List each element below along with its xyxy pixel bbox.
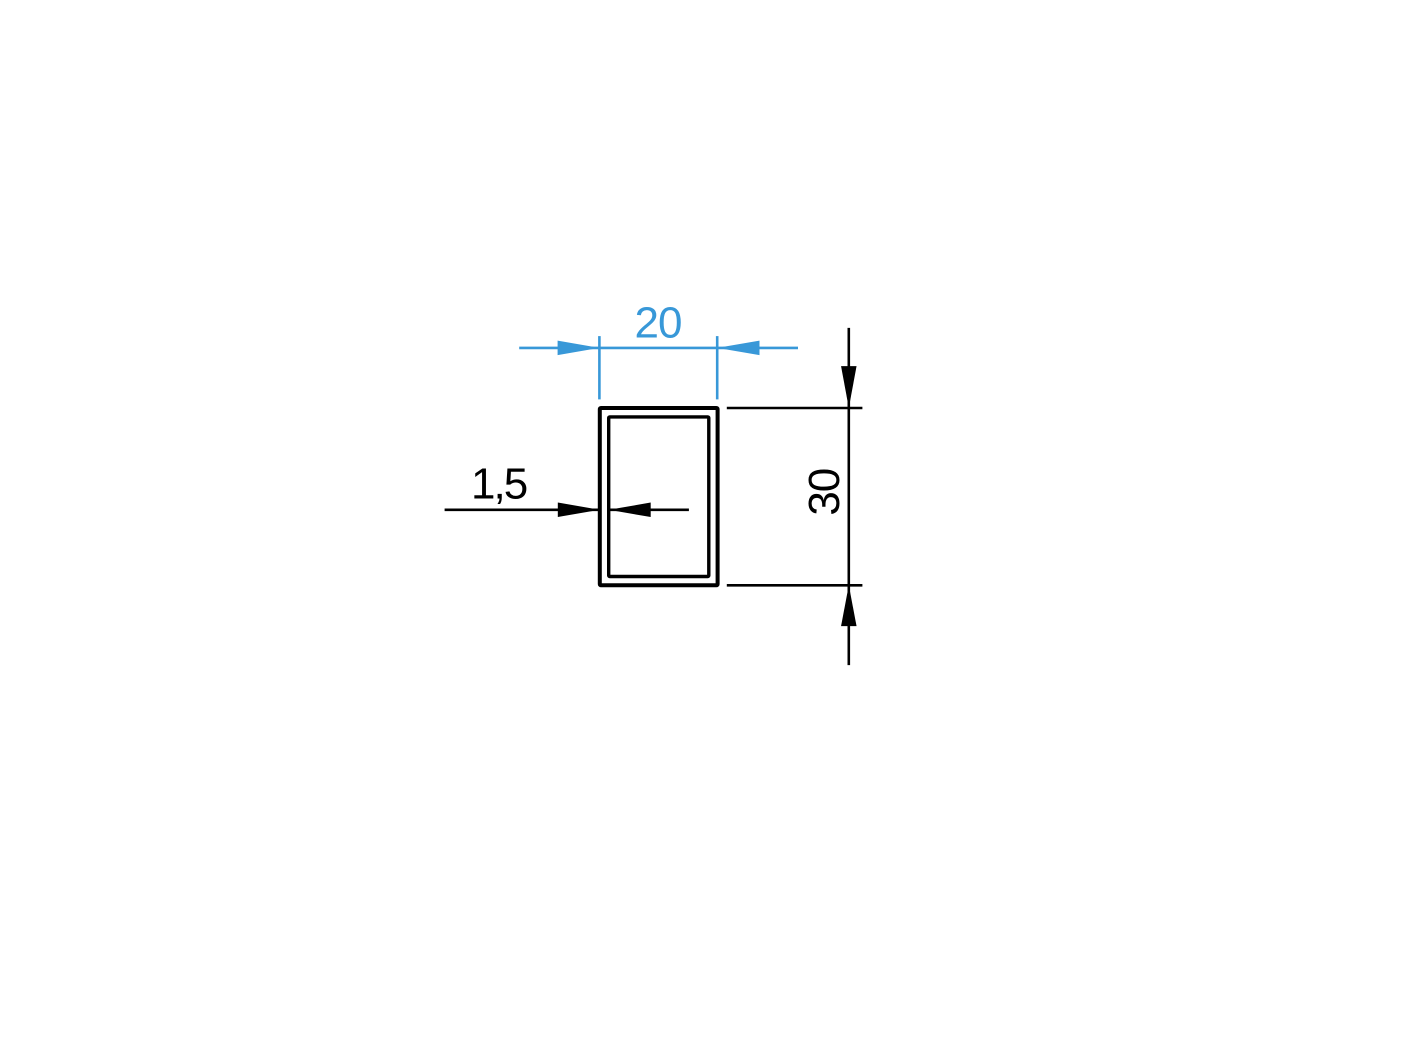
svg-text:20: 20 (635, 298, 682, 347)
svg-text:1,5: 1,5 (471, 460, 527, 509)
svg-text:30: 30 (800, 469, 849, 516)
